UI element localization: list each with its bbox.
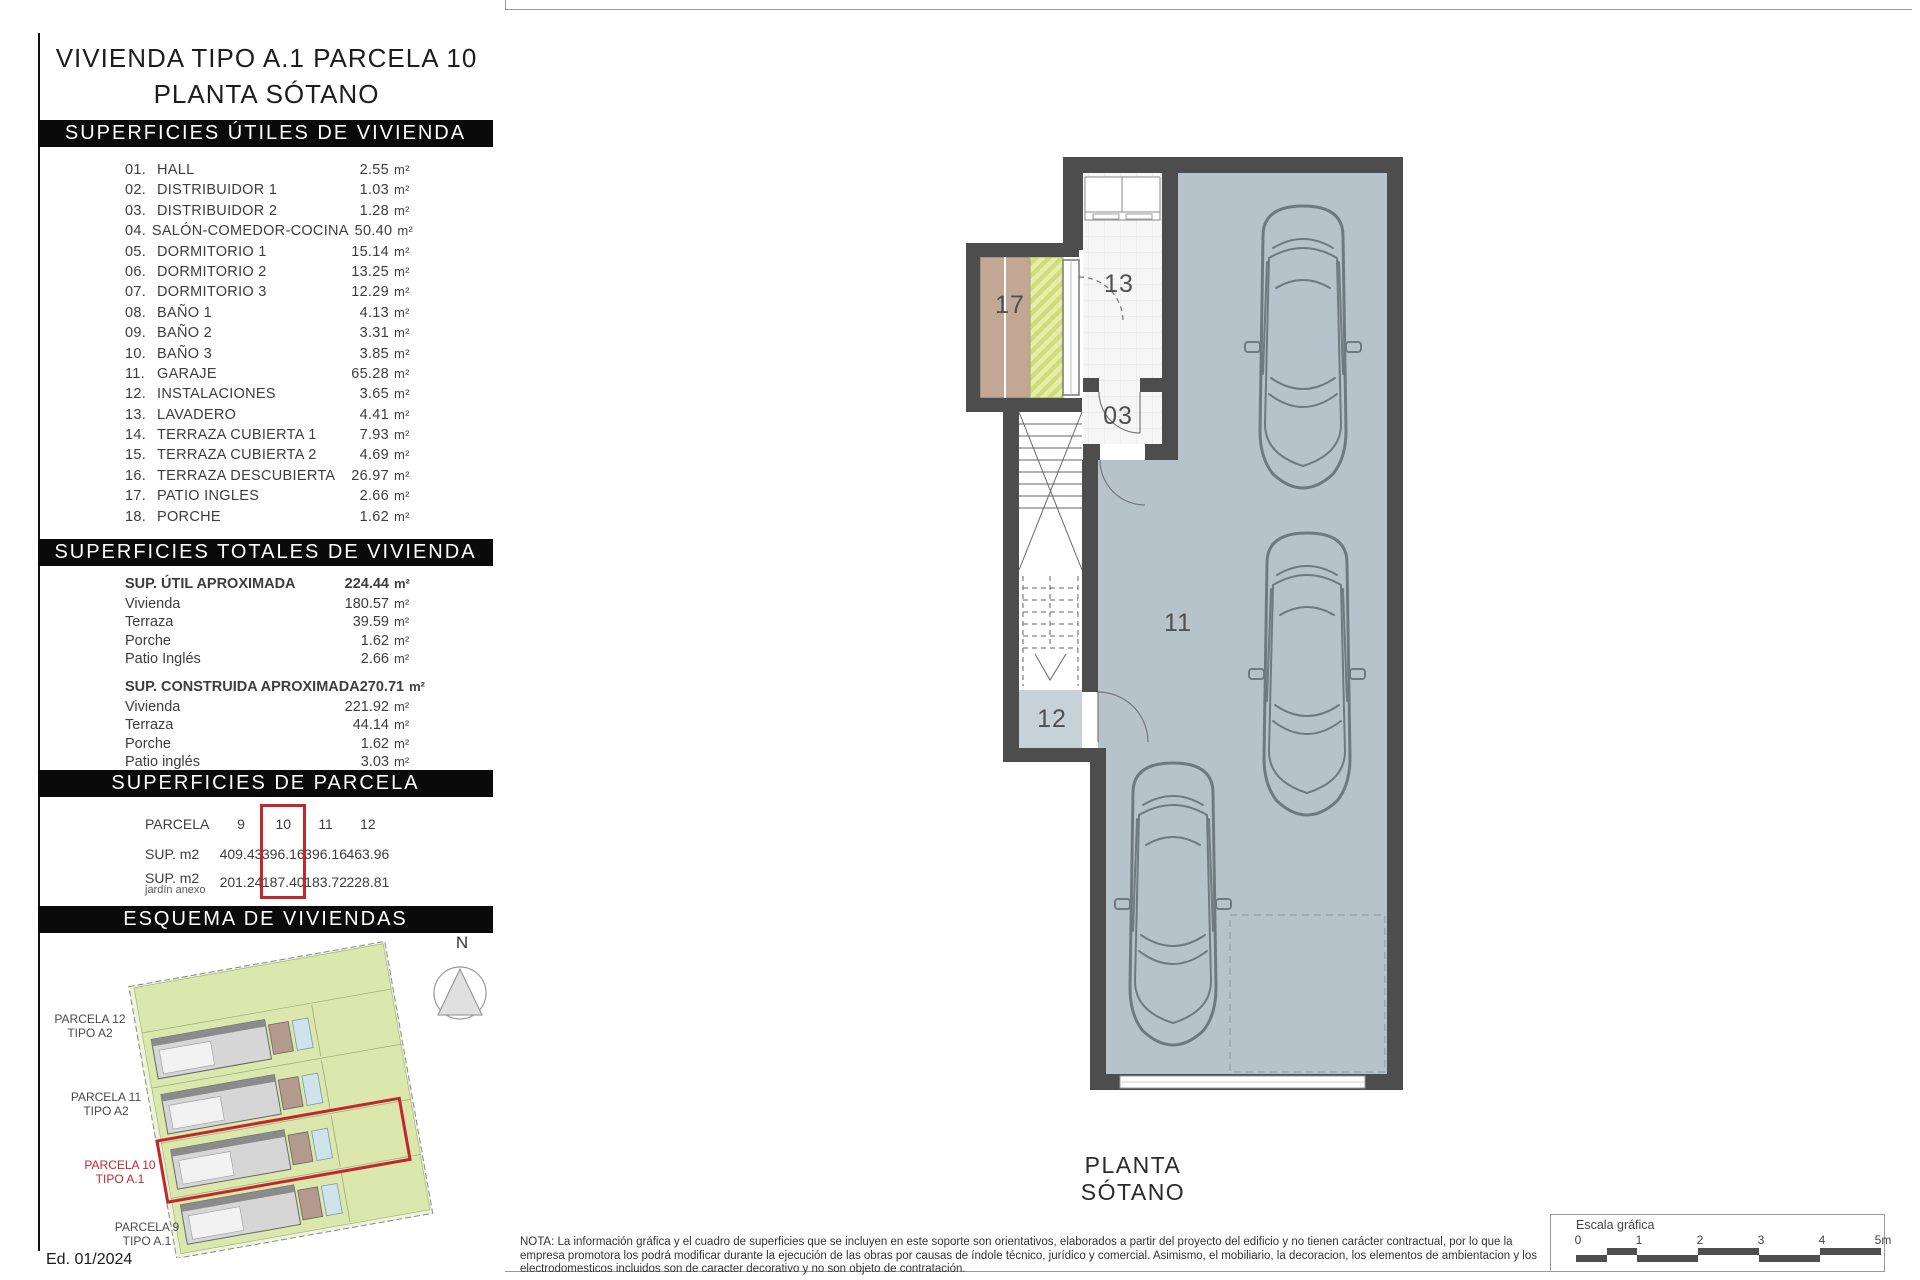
- area-row: 09.BAÑO 23.31m²: [125, 325, 415, 345]
- area-row-number: 12.: [125, 386, 157, 402]
- area-row-value: 12.29: [337, 284, 389, 300]
- totals-row: Porche1.62m²: [125, 736, 415, 754]
- area-row-number: 07.: [125, 284, 157, 300]
- parcela-jardin-cell: 228.81: [346, 874, 390, 890]
- area-row-unit: m²: [389, 244, 415, 259]
- totals-list: SUP. ÚTIL APROXIMADA224.44m²Vivienda180.…: [125, 576, 415, 772]
- totals-row-unit: m²: [389, 736, 415, 751]
- parcela-sup-cell: 396.16: [304, 846, 348, 862]
- area-row-unit: m²: [389, 264, 415, 279]
- area-row: 17.PATIO INGLES2.66m²: [125, 488, 415, 508]
- area-row-number: 10.: [125, 346, 157, 362]
- area-row: 03.DISTRIBUIDOR 21.28m²: [125, 203, 415, 223]
- patio-gravel: [1030, 257, 1063, 398]
- scale-tick-label: 0: [1563, 1233, 1593, 1247]
- esquema-parcel-line2: TIPO A2: [45, 1026, 135, 1040]
- totals-row-value: 39.59: [333, 614, 389, 630]
- area-row-value: 1.62: [337, 509, 389, 525]
- area-row-number: 13.: [125, 407, 157, 423]
- totals-group-value: 270.71: [360, 679, 404, 695]
- totals-group-header: SUP. CONSTRUIDA APROXIMADA270.71m²: [125, 679, 415, 699]
- area-row-unit: m²: [389, 162, 415, 177]
- area-row-name: PATIO INGLES: [157, 488, 337, 504]
- parcela-number-cell: 9: [219, 816, 263, 832]
- area-row-number: 08.: [125, 305, 157, 321]
- area-row-unit: m²: [389, 468, 415, 483]
- area-row-value: 50.40: [349, 223, 393, 239]
- parcela-sup-cell: 463.96: [346, 846, 390, 862]
- sheet-top-rule: [505, 9, 1912, 10]
- area-row: 16.TERRAZA DESCUBIERTA26.97m²: [125, 468, 415, 488]
- area-row-value: 7.93: [337, 427, 389, 443]
- area-row-unit: m²: [389, 386, 415, 401]
- room-number-label: 12: [1030, 705, 1074, 734]
- parcela-jardin-cell: 201.24: [219, 874, 263, 890]
- area-row: 11.GARAJE65.28m²: [125, 366, 415, 386]
- totals-row-label: Porche: [125, 633, 333, 649]
- area-row-name: DORMITORIO 2: [157, 264, 337, 280]
- esquema-parcel-line2: TIPO A.1: [102, 1234, 192, 1248]
- totals-row-label: Terraza: [125, 614, 333, 630]
- totals-row: Terraza39.59m²: [125, 614, 415, 632]
- area-row-unit: m²: [392, 223, 415, 238]
- area-row: 18.PORCHE1.62m²: [125, 509, 415, 529]
- totals-row-unit: m²: [389, 754, 415, 769]
- area-row-value: 26.97: [337, 468, 389, 484]
- page-title-line2: PLANTA SÓTANO: [40, 76, 493, 112]
- scale-ticks: 012345m: [1576, 1233, 1896, 1246]
- totals-group-unit: m²: [389, 576, 415, 591]
- area-row: 06.DORMITORIO 213.25m²: [125, 264, 415, 284]
- area-row-number: 11.: [125, 366, 157, 382]
- area-row-name: BAÑO 1: [157, 305, 337, 321]
- area-row-unit: m²: [389, 182, 415, 197]
- legal-note-line: electrodomesticos incluidos son de carac…: [520, 1263, 1550, 1277]
- area-row-number: 05.: [125, 244, 157, 260]
- area-row-name: PORCHE: [157, 509, 337, 525]
- area-row-number: 02.: [125, 182, 157, 198]
- totals-row-unit: m²: [389, 614, 415, 629]
- area-row: 02.DISTRIBUIDOR 11.03m²: [125, 182, 415, 202]
- totals-row-unit: m²: [389, 596, 415, 611]
- totals-row: Vivienda221.92m²: [125, 699, 415, 717]
- area-row-name: DORMITORIO 3: [157, 284, 337, 300]
- totals-row-label: Vivienda: [125, 596, 333, 612]
- totals-row-unit: m²: [389, 633, 415, 648]
- room-number-label: 03: [1096, 402, 1140, 431]
- parcela-sup-cell: 409.43: [219, 846, 263, 862]
- esquema-parcel-label: PARCELA 10TIPO A.1: [75, 1158, 165, 1186]
- totals-row-value: 1.62: [333, 633, 389, 649]
- area-row-unit: m²: [389, 488, 415, 503]
- area-row-value: 4.13: [337, 305, 389, 321]
- section-header-label: SUPERFICIES DE PARCELA: [111, 772, 419, 794]
- area-row: 10.BAÑO 33.85m²: [125, 346, 415, 366]
- parcela-row-label: PARCELA: [145, 816, 209, 832]
- area-row-name: BAÑO 2: [157, 325, 337, 341]
- section-header-superficies-utiles: SUPERFICIES ÚTILES DE VIVIENDA: [38, 120, 493, 147]
- area-row-value: 2.66: [337, 488, 389, 504]
- totals-row-value: 1.62: [333, 736, 389, 752]
- area-row-name: BAÑO 3: [157, 346, 337, 362]
- legal-note: NOTA: La información gráfica y el cuadro…: [520, 1236, 1550, 1277]
- useful-areas-list: 01.HALL2.55m²02.DISTRIBUIDOR 11.03m²03.D…: [125, 162, 415, 529]
- section-header-esquema: ESQUEMA DE VIVIENDAS: [38, 906, 493, 933]
- totals-group-value: 224.44: [333, 576, 389, 592]
- area-row-value: 1.28: [337, 203, 389, 219]
- totals-row-label: Patio inglés: [125, 754, 333, 770]
- scale-box-left: [1550, 1214, 1551, 1272]
- area-row-name: GARAJE: [157, 366, 337, 382]
- plan-caption: PLANTA SÓTANO: [1033, 1152, 1233, 1206]
- compass-icon: [434, 967, 486, 1019]
- totals-row: Terraza44.14m²: [125, 717, 415, 735]
- section-header-label: SUPERFICIES TOTALES DE VIVIENDA: [54, 541, 476, 563]
- room-number-label: 13: [1097, 270, 1141, 299]
- parcela-number-cell: 12: [346, 816, 390, 832]
- area-row-unit: m²: [389, 284, 415, 299]
- totals-row: Porche1.62m²: [125, 633, 415, 651]
- area-row: 04.SALÓN-COMEDOR-COCINA50.40m²: [125, 223, 415, 243]
- area-row-unit: m²: [389, 305, 415, 320]
- area-row-value: 3.31: [337, 325, 389, 341]
- area-row-number: 18.: [125, 509, 157, 525]
- esquema-parcel-line1: PARCELA 12: [45, 1012, 135, 1026]
- area-row: 13.LAVADERO4.41m²: [125, 407, 415, 427]
- area-row-value: 2.55: [337, 162, 389, 178]
- area-row-number: 06.: [125, 264, 157, 280]
- cupboard: [1085, 177, 1160, 220]
- esquema-parcel-label: PARCELA 12TIPO A2: [45, 1012, 135, 1040]
- area-row: 12.INSTALACIONES3.65m²: [125, 386, 415, 406]
- basement-floor-plan: [960, 140, 1430, 1140]
- totals-group-label: SUP. CONSTRUIDA APROXIMADA: [125, 679, 360, 695]
- area-row-unit: m²: [389, 407, 415, 422]
- parcela-number-cell: 11: [304, 816, 348, 832]
- scale-tick-label: 4: [1807, 1233, 1837, 1247]
- area-row-value: 4.69: [337, 447, 389, 463]
- totals-row: Vivienda180.57m²: [125, 596, 415, 614]
- totals-row-label: Patio Inglés: [125, 651, 333, 667]
- area-row-name: TERRAZA CUBIERTA 1: [157, 427, 337, 443]
- area-row-number: 04.: [125, 223, 152, 239]
- totals-row-value: 2.66: [333, 651, 389, 667]
- scale-box-top: [1550, 1214, 1884, 1215]
- page-title-line1: VIVIENDA TIPO A.1 PARCELA 10: [40, 40, 493, 76]
- scale-bar: [1576, 1248, 1884, 1262]
- area-row-unit: m²: [389, 447, 415, 462]
- esquema-parcel-label: PARCELA 11TIPO A2: [61, 1090, 151, 1118]
- area-row-number: 09.: [125, 325, 157, 341]
- esquema-parcel-line1: PARCELA 10: [75, 1158, 165, 1172]
- area-row-value: 3.65: [337, 386, 389, 402]
- area-row-value: 4.41: [337, 407, 389, 423]
- esquema-parcel-line1: PARCELA 11: [61, 1090, 151, 1104]
- area-row-name: DISTRIBUIDOR 1: [157, 182, 337, 198]
- area-row-value: 13.25: [337, 264, 389, 280]
- area-row-value: 15.14: [337, 244, 389, 260]
- area-row-value: 1.03: [337, 182, 389, 198]
- area-row: 08.BAÑO 14.13m²: [125, 305, 415, 325]
- area-row: 05.DORMITORIO 115.14m²: [125, 244, 415, 264]
- area-row-number: 01.: [125, 162, 157, 178]
- parcela-row-label-sub: jardín anexo: [145, 884, 206, 896]
- esquema-parcel-line1: PARCELA 9: [102, 1220, 192, 1234]
- totals-row-value: 180.57: [333, 596, 389, 612]
- area-row-name: DISTRIBUIDOR 2: [157, 203, 337, 219]
- area-row-value: 65.28: [337, 366, 389, 382]
- section-header-superficies-totales: SUPERFICIES TOTALES DE VIVIENDA: [38, 539, 493, 566]
- area-row-number: 17.: [125, 488, 157, 504]
- sheet-top-divider: [505, 0, 506, 10]
- totals-row-label: Vivienda: [125, 699, 333, 715]
- scale-label: Escala gráfica: [1576, 1218, 1884, 1232]
- room-number-label: 17: [988, 291, 1032, 320]
- totals-row-unit: m²: [389, 651, 415, 666]
- area-row-name: INSTALACIONES: [157, 386, 337, 402]
- area-row: 15.TERRAZA CUBIERTA 24.69m²: [125, 447, 415, 467]
- totals-row-value: 221.92: [333, 699, 389, 715]
- compass-north-label: N: [452, 933, 472, 953]
- esquema-parcel-line2: TIPO A.1: [75, 1172, 165, 1186]
- graphic-scale: Escala gráfica: [1576, 1218, 1884, 1232]
- area-row-unit: m²: [389, 325, 415, 340]
- legal-note-line: NOTA: La información gráfica y el cuadro…: [520, 1236, 1550, 1250]
- area-row-unit: m²: [389, 366, 415, 381]
- area-row-unit: m²: [389, 203, 415, 218]
- highlighted-parcela-outline: [260, 804, 306, 899]
- totals-row: Patio Inglés2.66m²: [125, 651, 415, 669]
- section-header-superficies-parcela: SUPERFICIES DE PARCELA: [38, 770, 493, 797]
- area-row: 14.TERRAZA CUBIERTA 17.93m²: [125, 427, 415, 447]
- page-title: VIVIENDA TIPO A.1 PARCELA 10 PLANTA SÓTA…: [40, 40, 493, 112]
- parcela-jardin-cell: 183.72: [304, 874, 348, 890]
- area-row-name: SALÓN-COMEDOR-COCINA: [152, 223, 349, 239]
- totals-group: SUP. ÚTIL APROXIMADA224.44m²Vivienda180.…: [125, 576, 415, 669]
- scale-tick-label: 5m: [1868, 1233, 1898, 1247]
- site-parcels: [129, 941, 433, 1258]
- totals-row-label: Porche: [125, 736, 333, 752]
- totals-row-label: Terraza: [125, 717, 333, 733]
- totals-group-label: SUP. ÚTIL APROXIMADA: [125, 576, 333, 592]
- area-row-unit: m²: [389, 427, 415, 442]
- totals-row-unit: m²: [389, 717, 415, 732]
- totals-group-header: SUP. ÚTIL APROXIMADA224.44m²: [125, 576, 415, 596]
- section-header-label: ESQUEMA DE VIVIENDAS: [123, 908, 408, 930]
- room-number-label: 11: [1156, 609, 1200, 638]
- edition-label: Ed. 01/2024: [46, 1251, 132, 1269]
- esquema-parcel-label: PARCELA 9TIPO A.1: [102, 1220, 192, 1248]
- area-row-number: 15.: [125, 447, 157, 463]
- area-row-name: TERRAZA DESCUBIERTA: [157, 468, 337, 484]
- area-row-name: TERRAZA CUBIERTA 2: [157, 447, 337, 463]
- area-row-unit: m²: [389, 346, 415, 361]
- parcela-row-label: SUP. m2: [145, 846, 199, 862]
- area-row-name: LAVADERO: [157, 407, 337, 423]
- area-row: 01.HALL2.55m²: [125, 162, 415, 182]
- totals-row-value: 3.03: [333, 754, 389, 770]
- area-row-number: 16.: [125, 468, 157, 484]
- section-header-label: SUPERFICIES ÚTILES DE VIVIENDA: [65, 122, 466, 144]
- legal-note-line: empresa promotora los podrá modificar du…: [520, 1250, 1550, 1264]
- scale-tick-label: 1: [1624, 1233, 1654, 1247]
- area-row: 07.DORMITORIO 312.29m²: [125, 284, 415, 304]
- scale-tick-label: 3: [1746, 1233, 1776, 1247]
- area-row-name: HALL: [157, 162, 337, 178]
- area-row-name: DORMITORIO 1: [157, 244, 337, 260]
- totals-group: SUP. CONSTRUIDA APROXIMADA270.71m²Vivien…: [125, 679, 415, 772]
- totals-row-unit: m²: [389, 699, 415, 714]
- plan-sheet: VIVIENDA TIPO A.1 PARCELA 10 PLANTA SÓTA…: [0, 0, 1920, 1280]
- area-row-value: 3.85: [337, 346, 389, 362]
- parcela-row-label: SUP. m2 jardín anexo: [145, 870, 206, 896]
- scale-tick-label: 2: [1685, 1233, 1715, 1247]
- totals-row-value: 44.14: [333, 717, 389, 733]
- area-row-unit: m²: [389, 509, 415, 524]
- area-row-number: 03.: [125, 203, 157, 219]
- area-row-number: 14.: [125, 427, 157, 443]
- totals-group-unit: m²: [404, 679, 425, 694]
- esquema-parcel-line2: TIPO A2: [61, 1104, 151, 1118]
